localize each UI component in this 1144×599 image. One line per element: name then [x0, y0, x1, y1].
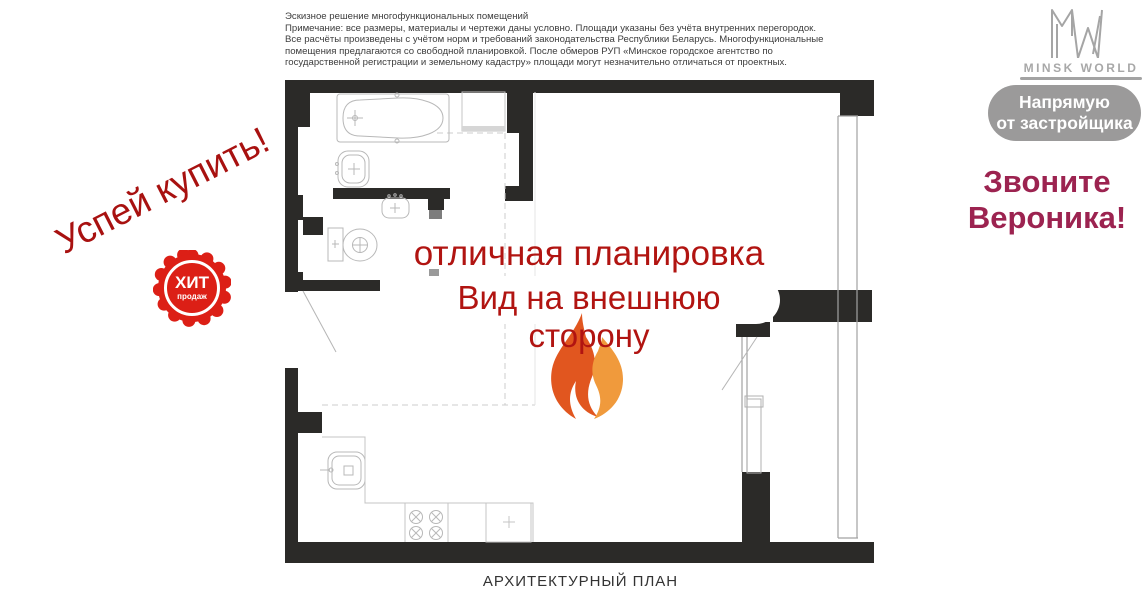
disclaimer-line: Примечание: все размеры, материалы и чер… [285, 23, 870, 35]
wall-segment [519, 130, 533, 188]
wall-segment [287, 542, 874, 563]
hit-sales-badge-icon: ХИТ продаж [153, 250, 231, 328]
wall-segment [303, 217, 323, 235]
disclaimer-line: Эскизное решение многофункциональных пом… [285, 11, 870, 23]
wall-segment [285, 80, 298, 292]
column-stub [429, 210, 442, 219]
wall-segment [742, 472, 770, 543]
call-line: Звоните [950, 164, 1144, 200]
kitchen-sink [320, 452, 365, 489]
logo-underline [1020, 77, 1142, 80]
loggia-shaft [745, 396, 763, 473]
wall-segment [507, 91, 533, 133]
architectural-plan-caption: АРХИТЕКТУРНЫЙ ПЛАН [287, 573, 874, 590]
wall-segment [285, 368, 298, 563]
kitchen-appliance [486, 503, 531, 542]
washbasin [336, 151, 370, 187]
disclaimer-line: государственной регистрации и земельному… [285, 57, 870, 69]
wall-segment [303, 280, 380, 291]
wall-segment [285, 272, 303, 291]
minsk-world-wordmark: MINSK WORLD [1018, 61, 1144, 75]
disclaimer-text: Эскизное решение многофункциональных пом… [285, 11, 870, 69]
headline-great-layout: отличная планировка [398, 234, 780, 274]
wall-segment [505, 186, 533, 201]
disclaimer-line: Все расчёты произведены с учётом норм и … [285, 34, 870, 46]
disclaimer-line: помещения предлагаются со свободной план… [285, 46, 870, 58]
headline-outer-view: Вид на внешнюю сторону [398, 279, 780, 355]
entrance-door-swing [303, 291, 336, 352]
bathtub [337, 93, 449, 143]
hit-badge-title: ХИТ [175, 273, 210, 292]
direct-from-developer-badge: Напрямую от застройщика [988, 85, 1141, 141]
hit-badge-subtitle: продаж [177, 292, 207, 301]
direct-badge-line: от застройщика [988, 113, 1141, 134]
wall-segment [428, 199, 444, 210]
call-line: Вероника! [950, 200, 1144, 236]
wall-segment [285, 195, 303, 220]
wall-segment [333, 188, 450, 199]
wall-segment [287, 80, 874, 93]
toilet [328, 228, 377, 261]
direct-badge-line: Напрямую [988, 92, 1141, 113]
shower-tray [462, 92, 505, 131]
call-veronika-text: Звоните Вероника! [950, 164, 1144, 236]
wall-segment [840, 92, 874, 116]
minsk-world-logo-icon [1048, 6, 1104, 58]
wall-segment [297, 412, 322, 433]
stove [410, 511, 443, 540]
